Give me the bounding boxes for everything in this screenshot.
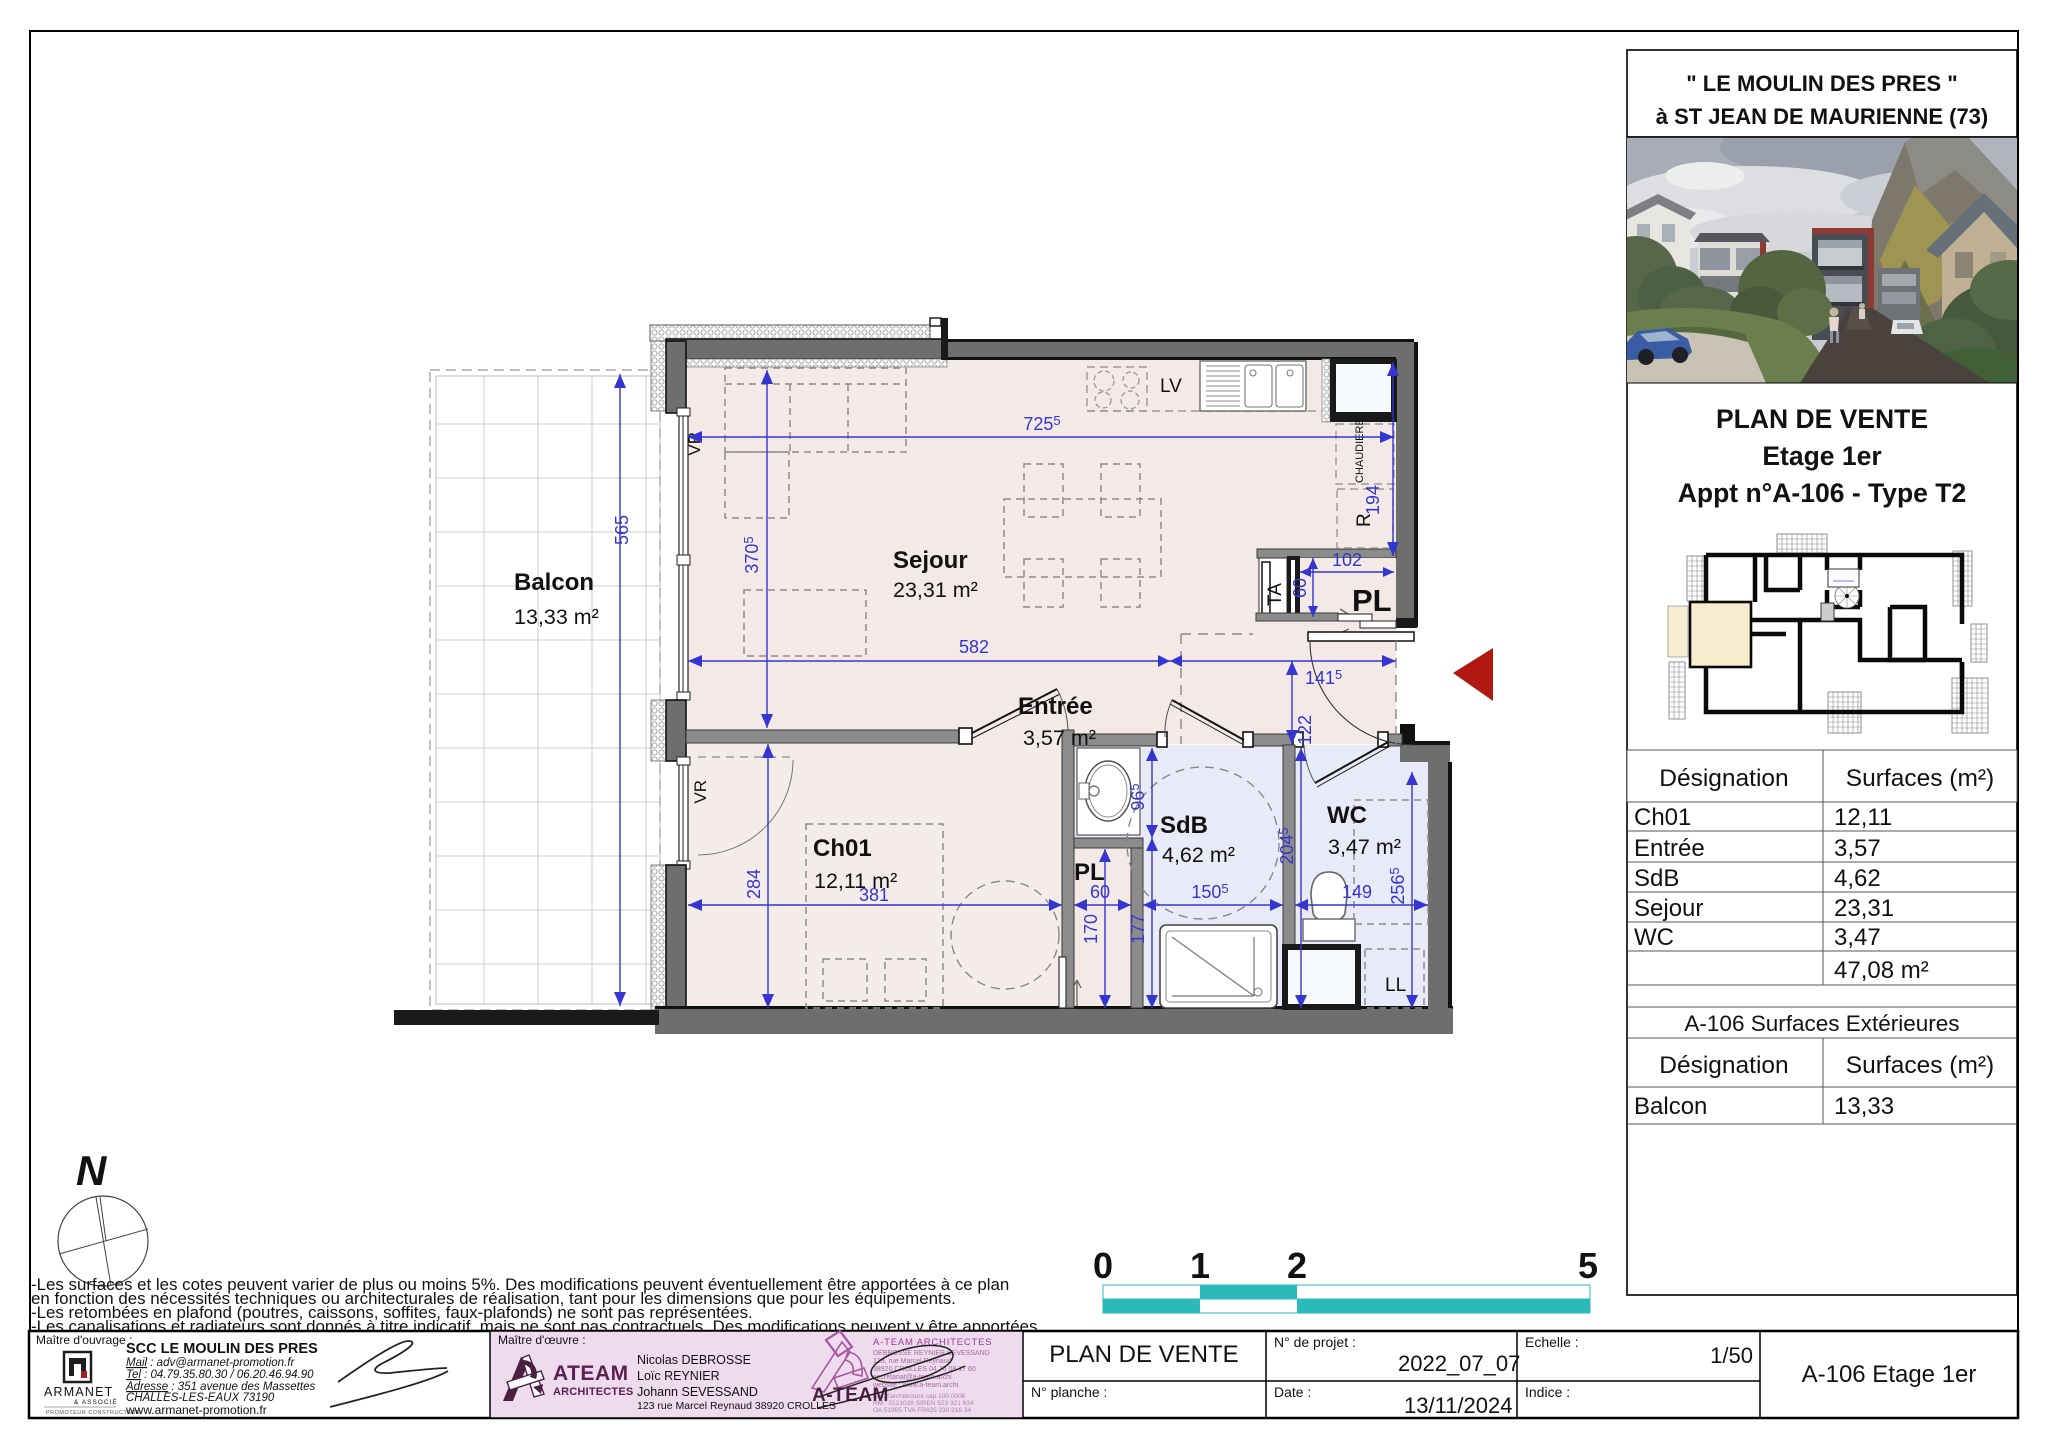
svg-text:VR: VR — [691, 780, 710, 804]
svg-text:A-106 Etage 1er: A-106 Etage 1er — [1802, 1361, 1977, 1388]
svg-text:12,11 m²: 12,11 m² — [814, 869, 897, 893]
svg-text:Désignation: Désignation — [1659, 1052, 1788, 1079]
svg-text:N° planche :: N° planche : — [1031, 1384, 1107, 1400]
svg-text:ARMANET: ARMANET — [44, 1385, 114, 1399]
svg-text:Entrée: Entrée — [1018, 693, 1093, 720]
svg-text:Balcon: Balcon — [514, 569, 594, 596]
svg-text:& ASSOCIÉ: & ASSOCIÉ — [74, 1397, 118, 1406]
svg-text:Tel : 04.79.35.80.30 / 06.20.4: Tel : 04.79.35.80.30 / 06.20.46.94.90 — [126, 1369, 314, 1381]
svg-text:PLAN DE VENTE: PLAN DE VENTE — [1716, 404, 1928, 434]
svg-text:Ch01: Ch01 — [813, 835, 872, 862]
svg-text:Etage 1er: Etage 1er — [1762, 441, 1881, 471]
svg-text:Echelle :: Echelle : — [1525, 1334, 1579, 1350]
svg-text:N° de projet :: N° de projet : — [1274, 1334, 1356, 1350]
svg-text:102: 102 — [1332, 550, 1362, 570]
svg-text:A-TEAM ARCHITECTES: A-TEAM ARCHITECTES — [873, 1337, 992, 1348]
svg-text:Maître d'œuvre :: Maître d'œuvre : — [498, 1333, 586, 1347]
svg-text:Johann SEVESSAND: Johann SEVESSAND — [637, 1385, 758, 1399]
svg-text:284: 284 — [744, 869, 764, 899]
svg-text:Balcon: Balcon — [1634, 1093, 1707, 1120]
svg-text:2022_07_07: 2022_07_07 — [1398, 1351, 1520, 1376]
svg-text:Entrée: Entrée — [1634, 835, 1705, 862]
svg-text:0: 0 — [1093, 1245, 1113, 1286]
svg-text:122: 122 — [1295, 715, 1315, 745]
svg-text:PL: PL — [1074, 859, 1105, 886]
svg-text:à ST JEAN DE MAURIENNE (73): à ST JEAN DE MAURIENNE (73) — [1656, 104, 1989, 129]
svg-text:Indice :: Indice : — [1525, 1384, 1570, 1400]
svg-text:OA 51905 TVA FR625 230 216 34: OA 51905 TVA FR625 230 216 34 — [873, 1407, 971, 1414]
svg-text:A-106 Surfaces Extérieures: A-106 Surfaces Extérieures — [1684, 1011, 1959, 1036]
svg-text:Maître d'ouvrage :: Maître d'ouvrage : — [36, 1333, 132, 1347]
svg-text:60: 60 — [1290, 578, 1310, 598]
svg-text:PL: PL — [1352, 583, 1392, 618]
svg-text:Mail : adv@armanet-promotion.f: Mail : adv@armanet-promotion.fr — [126, 1357, 295, 1369]
svg-text:3,47: 3,47 — [1834, 924, 1881, 951]
svg-text:Loïc REYNIER: Loïc REYNIER — [637, 1369, 720, 1383]
svg-text:LV: LV — [1160, 376, 1182, 397]
svg-text:1/50: 1/50 — [1710, 1343, 1753, 1368]
svg-text:23,31 m²: 23,31 m² — [893, 578, 978, 602]
svg-text:5: 5 — [1578, 1245, 1598, 1286]
svg-text:3,57 m²: 3,57 m² — [1023, 726, 1096, 750]
svg-text:Désignation: Désignation — [1659, 765, 1788, 792]
svg-text:Sejour: Sejour — [893, 547, 968, 574]
svg-text:4,62 m²: 4,62 m² — [1162, 843, 1235, 867]
svg-text:3,57: 3,57 — [1834, 835, 1881, 862]
svg-text:170: 170 — [1081, 914, 1101, 944]
svg-text:4,62: 4,62 — [1834, 865, 1881, 892]
svg-text:23,31: 23,31 — [1834, 895, 1894, 922]
svg-text:SdB: SdB — [1160, 812, 1208, 839]
svg-text:13,33: 13,33 — [1834, 1093, 1894, 1120]
svg-text:WC: WC — [1327, 802, 1367, 829]
svg-text:123, rue Marcel Reynaud: 123, rue Marcel Reynaud — [873, 1358, 952, 1365]
svg-text:1: 1 — [1190, 1245, 1210, 1286]
svg-text:177: 177 — [1128, 914, 1148, 944]
svg-text:194: 194 — [1363, 485, 1383, 515]
svg-text:582: 582 — [959, 637, 989, 657]
svg-text:PLAN DE VENTE: PLAN DE VENTE — [1049, 1341, 1238, 1368]
svg-text:3,47 m²: 3,47 m² — [1328, 835, 1401, 859]
svg-text:ARCHITECTES: ARCHITECTES — [553, 1386, 633, 1398]
svg-text:TA: TA — [1265, 583, 1286, 606]
svg-text:N: N — [76, 1147, 108, 1194]
svg-text:Nicolas DEBROSSE: Nicolas DEBROSSE — [637, 1353, 751, 1367]
svg-text:ATEAM: ATEAM — [553, 1362, 629, 1385]
svg-text:38920 CROLLES 04 76 08 17 60: 38920 CROLLES 04 76 08 17 60 — [873, 1366, 976, 1373]
svg-text:www.armanet-promotion.fr: www.armanet-promotion.fr — [125, 1403, 267, 1417]
svg-text:565: 565 — [612, 515, 632, 545]
svg-text:" LE MOULIN DES PRES ": " LE MOULIN DES PRES " — [1686, 71, 1957, 96]
svg-text:Date :: Date : — [1274, 1384, 1311, 1400]
svg-text:47,08 m²: 47,08 m² — [1834, 957, 1929, 984]
svg-text:LL: LL — [1385, 975, 1406, 996]
svg-text:WC: WC — [1634, 924, 1674, 951]
svg-text:123 rue Marcel Reynaud 38920 C: 123 rue Marcel Reynaud 38920 CROLLES — [637, 1400, 836, 1412]
svg-text:SdB: SdB — [1634, 865, 1679, 892]
svg-text:Sejour: Sejour — [1634, 895, 1703, 922]
svg-text:149: 149 — [1342, 882, 1372, 902]
svg-text:Appt n°A-106 - Type T2: Appt n°A-106 - Type T2 — [1678, 478, 1966, 508]
svg-text:13,33 m²: 13,33 m² — [514, 605, 599, 629]
svg-text:SCC LE MOULIN DES PRES: SCC LE MOULIN DES PRES — [126, 1341, 318, 1357]
svg-text:2: 2 — [1287, 1245, 1307, 1286]
svg-text:CHAUDIERE: CHAUDIERE — [1354, 418, 1366, 483]
svg-text:12,11: 12,11 — [1834, 804, 1892, 831]
svg-text:Surfaces (m²): Surfaces (m²) — [1846, 765, 1994, 792]
svg-text:DEBROSSE REYNIER SEVESSAND: DEBROSSE REYNIER SEVESSAND — [873, 1350, 990, 1357]
svg-text:Surfaces (m²): Surfaces (m²) — [1846, 1052, 1994, 1079]
svg-text:13/11/2024: 13/11/2024 — [1404, 1393, 1512, 1418]
svg-text:Ch01: Ch01 — [1634, 804, 1691, 831]
